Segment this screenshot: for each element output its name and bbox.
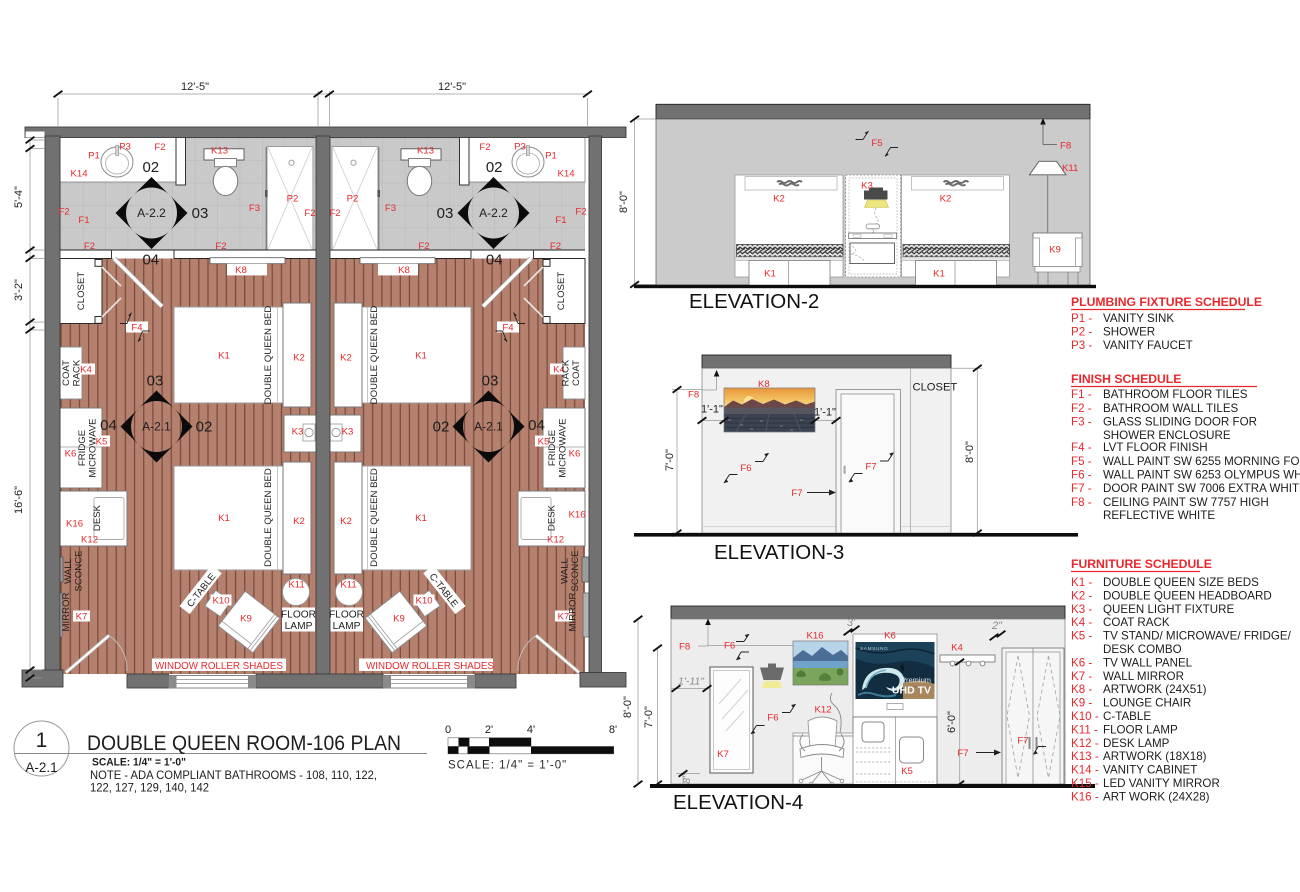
svg-text:3'-2": 3'-2" — [13, 279, 25, 301]
svg-text:7'-0": 7'-0" — [664, 449, 676, 471]
svg-text:WALL PAINT SW 6253 OLYMPUS WHI: WALL PAINT SW 6253 OLYMPUS WHITE — [1103, 469, 1300, 482]
svg-text:MIRROR: MIRROR — [568, 592, 579, 631]
svg-text:DESK: DESK — [92, 504, 103, 531]
svg-text:DESK COMBO: DESK COMBO — [1103, 643, 1182, 656]
svg-text:BATHROOM FLOOR TILES: BATHROOM FLOOR TILES — [1103, 388, 1248, 401]
svg-text:2": 2" — [991, 620, 1003, 632]
svg-text:K1: K1 — [218, 513, 230, 524]
svg-text:K6 -: K6 - — [1071, 656, 1092, 669]
svg-text:P3: P3 — [514, 142, 526, 153]
svg-text:A-2.1: A-2.1 — [142, 420, 171, 434]
svg-text:12'-5": 12'-5" — [181, 81, 209, 93]
svg-text:A-2.2: A-2.2 — [479, 206, 508, 220]
svg-text:K16 -: K16 - — [1071, 790, 1099, 803]
svg-text:P1: P1 — [88, 151, 100, 162]
svg-text:P1 -: P1 - — [1071, 312, 1092, 325]
svg-text:F8: F8 — [1060, 141, 1071, 152]
svg-text:ELEVATION-2: ELEVATION-2 — [689, 290, 819, 313]
svg-text:03: 03 — [147, 373, 164, 390]
svg-text:K1: K1 — [764, 269, 776, 280]
svg-text:04: 04 — [100, 417, 117, 434]
svg-text:K9: K9 — [393, 614, 405, 625]
svg-text:SCALE: 1/4" = 1'-0": SCALE: 1/4" = 1'-0" — [92, 757, 186, 769]
svg-text:F2: F2 — [58, 207, 69, 218]
svg-text:F2 -: F2 - — [1071, 402, 1092, 415]
svg-text:K7 -: K7 - — [1071, 670, 1092, 683]
svg-text:04: 04 — [486, 252, 503, 269]
svg-text:F2: F2 — [304, 208, 315, 219]
svg-text:A-2.1: A-2.1 — [25, 760, 57, 775]
svg-text:F1: F1 — [555, 215, 566, 226]
svg-text:K16: K16 — [66, 519, 83, 530]
svg-text:K12 -: K12 - — [1071, 737, 1099, 750]
svg-text:K12: K12 — [814, 705, 831, 716]
svg-text:K9: K9 — [240, 614, 252, 625]
svg-text:RACK: RACK — [72, 359, 83, 386]
svg-text:SAMSUNG: SAMSUNG — [860, 646, 888, 652]
svg-text:16'-6": 16'-6" — [13, 486, 25, 514]
svg-text:2': 2' — [485, 724, 493, 736]
svg-text:F2: F2 — [84, 241, 95, 252]
svg-text:8'-0": 8'-0" — [618, 191, 630, 213]
svg-text:REFLECTIVE WHITE: REFLECTIVE WHITE — [1103, 509, 1215, 522]
svg-text:F4 -: F4 - — [1071, 441, 1092, 454]
svg-text:3': 3' — [847, 617, 856, 629]
svg-text:FLOOR: FLOOR — [281, 610, 316, 621]
svg-text:F2: F2 — [329, 208, 340, 219]
svg-text:122, 127, 129, 140, 142: 122, 127, 129, 140, 142 — [90, 781, 209, 795]
svg-text:P2 -: P2 - — [1071, 326, 1092, 339]
svg-text:A-2.2: A-2.2 — [137, 206, 166, 220]
svg-text:5'-4": 5'-4" — [13, 186, 25, 208]
svg-text:K13: K13 — [417, 146, 434, 157]
svg-text:MICROWAVE: MICROWAVE — [558, 418, 569, 477]
svg-text:F6: F6 — [724, 641, 735, 652]
svg-text:DOUBLE QUEEN BED: DOUBLE QUEEN BED — [369, 306, 380, 405]
svg-text:K10: K10 — [415, 596, 432, 607]
svg-text:ARTWORK (18X18): ARTWORK (18X18) — [1103, 750, 1207, 763]
svg-text:K5 -: K5 - — [1071, 630, 1092, 643]
svg-text:K1: K1 — [415, 351, 427, 362]
svg-text:F5: F5 — [871, 138, 882, 149]
svg-text:COAT: COAT — [571, 360, 582, 386]
svg-text:K11: K11 — [1062, 163, 1078, 174]
svg-text:K2: K2 — [940, 194, 952, 205]
svg-text:SCONCE: SCONCE — [74, 550, 85, 591]
svg-text:K3 -: K3 - — [1071, 603, 1092, 616]
svg-text:DOUBLE QUEEN BED: DOUBLE QUEEN BED — [263, 468, 274, 567]
svg-text:ELEVATION-4: ELEVATION-4 — [673, 791, 803, 814]
svg-text:VANITY CABINET: VANITY CABINET — [1103, 764, 1197, 777]
svg-text:K6: K6 — [884, 631, 896, 642]
svg-text:MIRROR: MIRROR — [61, 592, 72, 631]
svg-text:K2: K2 — [340, 516, 352, 527]
svg-text:K3: K3 — [861, 181, 873, 192]
svg-text:K2: K2 — [293, 353, 305, 364]
svg-text:F5 -: F5 - — [1071, 455, 1092, 468]
svg-text:F7: F7 — [791, 488, 802, 499]
svg-text:ARTWORK (24X51): ARTWORK (24X51) — [1103, 683, 1207, 696]
svg-text:K2 -: K2 - — [1071, 589, 1092, 602]
svg-text:K2: K2 — [340, 353, 352, 364]
svg-text:LOUNGE CHAIR: LOUNGE CHAIR — [1103, 697, 1191, 710]
svg-text:02: 02 — [142, 159, 159, 176]
svg-text:WALL PAINT SW 6255 MORNING FOG: WALL PAINT SW 6255 MORNING FOG — [1103, 455, 1300, 468]
svg-text:K8 -: K8 - — [1071, 683, 1092, 696]
svg-text:12'-5": 12'-5" — [438, 81, 466, 93]
svg-text:F2: F2 — [418, 241, 429, 252]
svg-text:03: 03 — [482, 373, 499, 390]
svg-text:DESK: DESK — [547, 504, 558, 531]
svg-text:LVT FLOOR FINISH: LVT FLOOR FINISH — [1103, 441, 1208, 454]
svg-text:1: 1 — [36, 729, 48, 752]
svg-text:UHD TV: UHD TV — [892, 685, 931, 697]
svg-text:1'-11": 1'-11" — [678, 676, 705, 688]
svg-text:SHOWER ENCLOSURE: SHOWER ENCLOSURE — [1103, 429, 1231, 442]
svg-text:WINDOW ROLLER SHADES: WINDOW ROLLER SHADES — [366, 661, 494, 672]
svg-text:F7: F7 — [957, 748, 968, 759]
svg-text:LED VANITY MIRROR: LED VANITY MIRROR — [1103, 777, 1220, 790]
svg-text:1'-1": 1'-1" — [701, 404, 723, 416]
svg-text:P2: P2 — [347, 194, 359, 205]
svg-text:QUEEN LIGHT FIXTURE: QUEEN LIGHT FIXTURE — [1103, 603, 1234, 616]
svg-text:P3: P3 — [119, 142, 131, 153]
svg-text:K9: K9 — [1049, 245, 1061, 256]
svg-text:F2: F2 — [215, 241, 226, 252]
svg-text:4': 4' — [527, 724, 535, 736]
svg-text:DESK LAMP: DESK LAMP — [1103, 737, 1170, 750]
svg-text:F6 -: F6 - — [1071, 469, 1092, 482]
svg-text:LAMP: LAMP — [333, 621, 361, 632]
svg-text:K15 -: K15 - — [1071, 777, 1099, 790]
svg-text:WALL: WALL — [560, 557, 571, 583]
svg-text:WALL: WALL — [63, 557, 74, 583]
svg-text:TV STAND/ MICROWAVE/ FRIDGE/: TV STAND/ MICROWAVE/ FRIDGE/ — [1103, 630, 1292, 643]
svg-text:K11: K11 — [340, 580, 356, 591]
svg-text:DOUBLE QUEEN BED: DOUBLE QUEEN BED — [263, 306, 274, 405]
svg-text:K14 -: K14 - — [1071, 764, 1099, 777]
svg-text:K8: K8 — [235, 265, 247, 276]
svg-text:SHOWER: SHOWER — [1103, 326, 1155, 339]
svg-text:FLOOR: FLOOR — [329, 610, 364, 621]
svg-text:ART WORK (24X28): ART WORK (24X28) — [1103, 790, 1210, 803]
svg-text:04: 04 — [528, 417, 545, 434]
svg-text:FINISH SCHEDULE: FINISH SCHEDULE — [1071, 372, 1181, 386]
svg-text:COAT: COAT — [61, 360, 72, 386]
svg-text:F8 -: F8 - — [1071, 496, 1092, 509]
svg-text:F1: F1 — [78, 215, 89, 226]
svg-text:DOOR PAINT SW 7006 EXTRA WHITE: DOOR PAINT SW 7006 EXTRA WHITE — [1103, 482, 1300, 495]
svg-text:RACK: RACK — [561, 359, 572, 386]
svg-text:K2: K2 — [293, 516, 305, 527]
svg-text:F7: F7 — [1017, 736, 1028, 747]
svg-text:F6: F6 — [740, 463, 751, 474]
svg-text:K1: K1 — [218, 351, 230, 362]
svg-text:P2: P2 — [287, 194, 299, 205]
svg-text:VANITY FAUCET: VANITY FAUCET — [1103, 339, 1193, 352]
svg-text:K4: K4 — [951, 643, 963, 654]
svg-text:FRIDGE: FRIDGE — [77, 430, 88, 466]
svg-text:03: 03 — [192, 205, 209, 222]
svg-text:F7: F7 — [865, 462, 876, 473]
svg-text:A-2.1: A-2.1 — [474, 420, 503, 434]
svg-text:8'-0": 8'-0" — [622, 696, 634, 718]
svg-text:K11 -: K11 - — [1071, 723, 1098, 736]
svg-text:CLOSET: CLOSET — [556, 272, 567, 311]
svg-text:K12: K12 — [81, 535, 98, 546]
svg-text:K10: K10 — [212, 596, 229, 607]
svg-text:K9 -: K9 - — [1071, 697, 1092, 710]
svg-text:F3 -: F3 - — [1071, 416, 1092, 429]
svg-text:Premium: Premium — [901, 676, 931, 685]
svg-text:7'-0": 7'-0" — [643, 706, 655, 728]
svg-text:04: 04 — [142, 252, 159, 269]
svg-text:F8: F8 — [679, 642, 690, 653]
svg-text:K6: K6 — [65, 449, 77, 460]
svg-text:K13 -: K13 - — [1071, 750, 1099, 763]
svg-text:SCONCE: SCONCE — [570, 550, 581, 591]
svg-text:K4 -: K4 - — [1071, 616, 1092, 629]
svg-text:TV WALL PANEL: TV WALL PANEL — [1103, 656, 1193, 669]
svg-text:F4: F4 — [131, 323, 143, 334]
svg-text:K3: K3 — [342, 427, 354, 438]
svg-text:K8: K8 — [758, 379, 770, 390]
svg-text:F2: F2 — [479, 142, 490, 153]
svg-text:SCALE: 1/4" = 1'-0": SCALE: 1/4" = 1'-0" — [448, 760, 567, 772]
svg-text:K16: K16 — [806, 631, 823, 642]
svg-text:FRIDGE: FRIDGE — [547, 430, 558, 466]
svg-text:COAT RACK: COAT RACK — [1103, 616, 1170, 629]
svg-text:GLASS SLIDING DOOR FOR: GLASS SLIDING DOOR FOR — [1103, 416, 1257, 429]
svg-text:F2: F2 — [154, 142, 165, 153]
svg-text:CEILING PAINT SW 7757 HIGH: CEILING PAINT SW 7757 HIGH — [1103, 496, 1269, 509]
svg-text:02: 02 — [486, 159, 503, 176]
svg-text:K3: K3 — [292, 427, 304, 438]
svg-text:8'-0": 8'-0" — [964, 441, 976, 463]
svg-text:1'-1": 1'-1" — [814, 407, 836, 419]
svg-text:0: 0 — [445, 724, 451, 736]
svg-text:BATHROOM WALL TILES: BATHROOM WALL TILES — [1103, 402, 1239, 415]
svg-text:F2: F2 — [575, 207, 586, 218]
svg-text:02: 02 — [196, 419, 213, 436]
svg-text:K16: K16 — [568, 510, 585, 521]
svg-text:F6: F6 — [767, 713, 778, 724]
svg-text:8': 8' — [609, 724, 617, 736]
svg-text:03: 03 — [437, 205, 454, 222]
svg-text:DOUBLE QUEEN SIZE BEDS: DOUBLE QUEEN SIZE BEDS — [1103, 576, 1259, 589]
svg-text:K12: K12 — [547, 535, 564, 546]
svg-text:WALL MIRROR: WALL MIRROR — [1103, 670, 1184, 683]
svg-text:F3: F3 — [385, 203, 396, 214]
svg-text:LAMP: LAMP — [285, 621, 313, 632]
svg-text:P3 -: P3 - — [1071, 339, 1092, 352]
svg-text:K1 -: K1 - — [1071, 576, 1092, 589]
svg-text:K1: K1 — [415, 513, 427, 524]
svg-text:VANITY SINK: VANITY SINK — [1103, 312, 1174, 325]
svg-text:8": 8" — [681, 773, 693, 784]
svg-text:F8: F8 — [688, 390, 699, 401]
svg-text:K7: K7 — [717, 749, 729, 760]
svg-text:F1 -: F1 - — [1071, 388, 1092, 401]
svg-text:02: 02 — [433, 419, 450, 436]
svg-text:K2: K2 — [773, 194, 785, 205]
svg-text:FURNITURE SCHEDULE: FURNITURE SCHEDULE — [1071, 557, 1212, 571]
svg-text:F3: F3 — [249, 203, 260, 214]
svg-text:K14: K14 — [70, 169, 88, 180]
svg-text:K11: K11 — [288, 580, 304, 591]
svg-text:6'-0": 6'-0" — [946, 711, 958, 733]
svg-text:F4: F4 — [502, 323, 514, 334]
svg-text:F7 -: F7 - — [1071, 482, 1092, 495]
svg-text:DOUBLE QUEEN HEADBOARD: DOUBLE QUEEN HEADBOARD — [1103, 589, 1272, 602]
svg-text:K13: K13 — [211, 146, 228, 157]
svg-text:WINDOW ROLLER SHADES: WINDOW ROLLER SHADES — [155, 661, 283, 672]
svg-text:PLUMBING FIXTURE SCHEDULE: PLUMBING FIXTURE SCHEDULE — [1071, 295, 1262, 309]
svg-text:FLOOR LAMP: FLOOR LAMP — [1103, 723, 1178, 736]
svg-text:DOUBLE QUEEN ROOM-106 PLAN: DOUBLE QUEEN ROOM-106 PLAN — [87, 731, 401, 755]
svg-text:K10 -: K10 - — [1071, 710, 1099, 723]
svg-text:K14: K14 — [557, 169, 575, 180]
svg-text:MICROWAVE: MICROWAVE — [88, 418, 99, 477]
svg-text:K6: K6 — [569, 449, 581, 460]
svg-text:CLOSET: CLOSET — [913, 382, 958, 394]
svg-text:K1: K1 — [933, 269, 945, 280]
svg-text:ELEVATION-3: ELEVATION-3 — [714, 541, 844, 564]
svg-text:CLOSET: CLOSET — [76, 272, 87, 311]
svg-text:F2: F2 — [550, 241, 561, 252]
svg-text:DOUBLE QUEEN BED: DOUBLE QUEEN BED — [369, 468, 380, 567]
svg-text:K8: K8 — [398, 265, 410, 276]
svg-text:K5: K5 — [901, 766, 913, 777]
svg-text:C-TABLE: C-TABLE — [1103, 710, 1151, 723]
svg-text:P1: P1 — [545, 151, 557, 162]
svg-text:K7: K7 — [76, 612, 88, 623]
